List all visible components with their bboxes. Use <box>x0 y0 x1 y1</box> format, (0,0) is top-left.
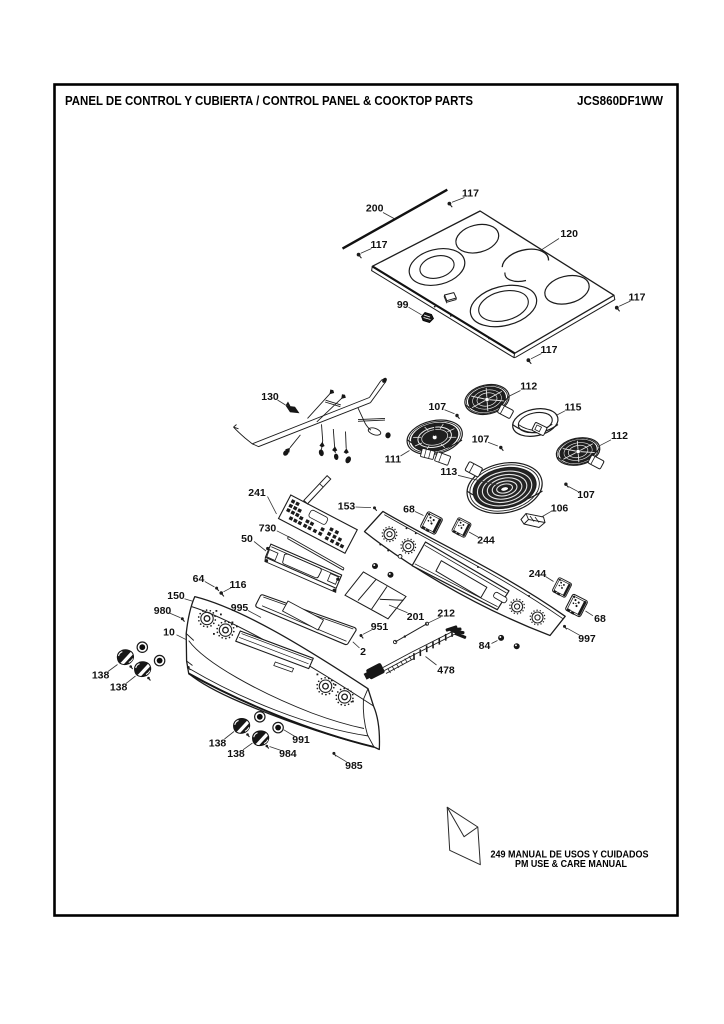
svg-text:991: 991 <box>292 734 310 746</box>
svg-text:212: 212 <box>437 608 455 620</box>
svg-text:111: 111 <box>385 454 402 466</box>
svg-text:200: 200 <box>366 202 384 214</box>
svg-text:244: 244 <box>477 535 495 547</box>
svg-text:50: 50 <box>241 533 253 545</box>
svg-text:107: 107 <box>429 401 447 413</box>
svg-text:117: 117 <box>541 344 558 356</box>
svg-text:138: 138 <box>92 670 110 682</box>
svg-text:984: 984 <box>279 748 297 760</box>
svg-text:997: 997 <box>578 633 596 645</box>
svg-text:99: 99 <box>397 299 409 311</box>
svg-text:106: 106 <box>551 503 569 515</box>
svg-text:117: 117 <box>462 187 479 199</box>
svg-text:201: 201 <box>407 611 425 623</box>
svg-text:130: 130 <box>261 391 279 403</box>
svg-text:995: 995 <box>231 602 249 614</box>
svg-text:84: 84 <box>479 640 491 652</box>
svg-text:138: 138 <box>227 748 245 760</box>
svg-text:117: 117 <box>629 292 646 304</box>
svg-text:115: 115 <box>565 402 582 414</box>
svg-text:478: 478 <box>437 665 455 677</box>
svg-text:241: 241 <box>248 487 266 499</box>
svg-text:68: 68 <box>403 504 415 516</box>
svg-text:120: 120 <box>560 228 578 240</box>
svg-text:116: 116 <box>230 579 247 591</box>
svg-text:107: 107 <box>472 433 490 445</box>
svg-text:980: 980 <box>154 605 172 617</box>
svg-text:138: 138 <box>209 737 227 749</box>
svg-text:951: 951 <box>371 621 389 633</box>
svg-text:10: 10 <box>163 627 175 639</box>
svg-text:244: 244 <box>529 568 547 580</box>
svg-text:112: 112 <box>611 430 628 442</box>
svg-text:PANEL DE CONTROL Y CUBIERTA /: PANEL DE CONTROL Y CUBIERTA / CONTROL PA… <box>65 93 473 108</box>
svg-text:113: 113 <box>440 466 457 478</box>
svg-text:730: 730 <box>259 523 277 535</box>
svg-text:2: 2 <box>360 646 366 658</box>
svg-text:150: 150 <box>167 590 185 602</box>
svg-text:64: 64 <box>193 573 205 585</box>
svg-text:PM USE & CARE MANUAL: PM USE & CARE MANUAL <box>515 859 627 870</box>
svg-text:117: 117 <box>371 239 388 251</box>
svg-text:107: 107 <box>577 489 595 501</box>
svg-text:138: 138 <box>110 682 128 694</box>
svg-text:68: 68 <box>594 613 606 625</box>
svg-text:153: 153 <box>338 501 356 513</box>
svg-text:JCS860DF1WW: JCS860DF1WW <box>577 93 664 108</box>
svg-text:985: 985 <box>345 760 363 772</box>
svg-text:112: 112 <box>520 380 537 392</box>
